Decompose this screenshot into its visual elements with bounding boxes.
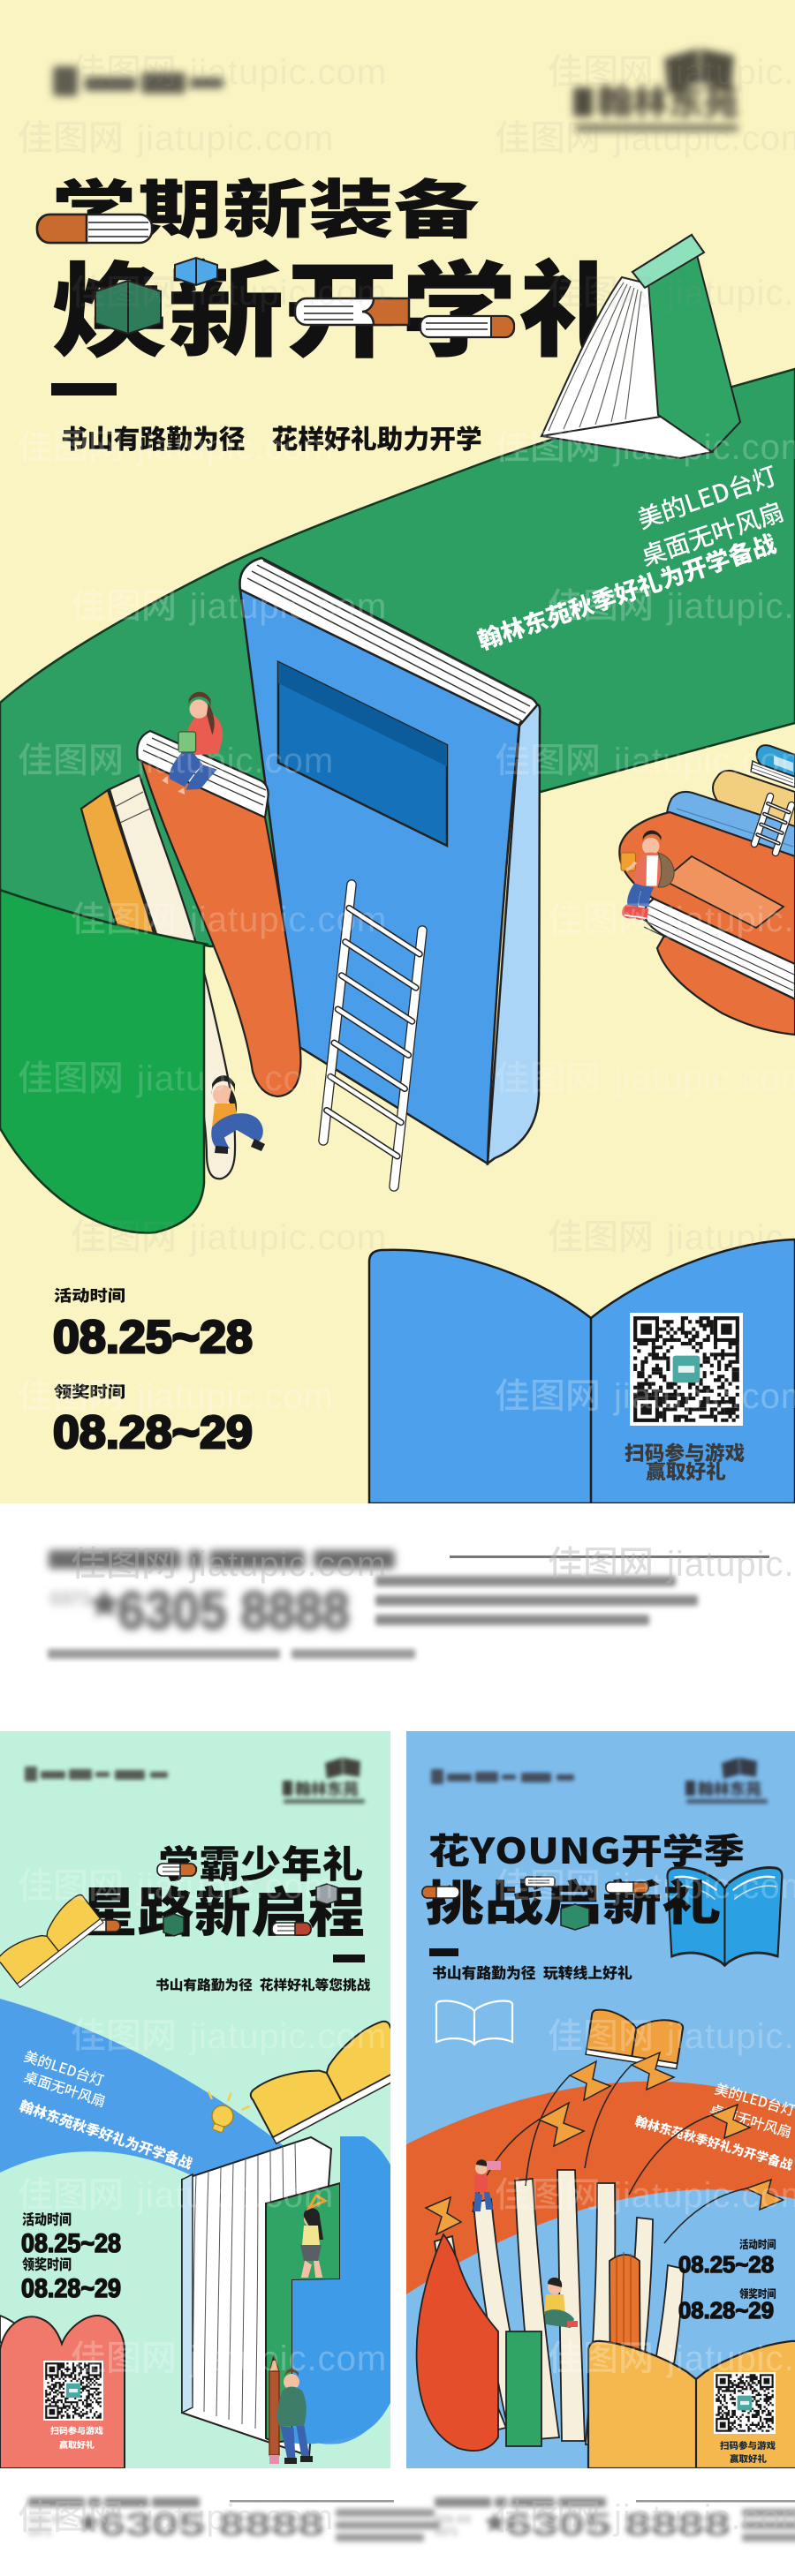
- svg-text:jiatupic.com: jiatupic.com: [613, 1377, 795, 1416]
- svg-text:jiatupic.com: jiatupic.com: [613, 1059, 795, 1098]
- svg-text:jiatupic.com: jiatupic.com: [136, 1377, 334, 1416]
- svg-text:jiatupic.com: jiatupic.com: [189, 900, 387, 939]
- svg-text:jiatupic.com: jiatupic.com: [136, 742, 334, 780]
- svg-text:08.25~28: 08.25~28: [21, 2229, 121, 2258]
- svg-text:08.25~28: 08.25~28: [53, 1312, 253, 1363]
- svg-text:jiatupic.com: jiatupic.com: [136, 1059, 334, 1098]
- svg-text:jiatupic.com: jiatupic.com: [136, 2176, 334, 2215]
- svg-text:0371: 0371: [435, 2526, 458, 2538]
- svg-text:jiatupic.com: jiatupic.com: [666, 900, 795, 939]
- svg-text:jiatupic.com: jiatupic.com: [136, 428, 334, 467]
- svg-text:jiatupic.com: jiatupic.com: [613, 428, 795, 467]
- svg-text:jiatupic.com: jiatupic.com: [189, 274, 387, 313]
- svg-text:0371: 0371: [50, 1589, 92, 1609]
- svg-text:jiatupic.com: jiatupic.com: [666, 1218, 795, 1257]
- svg-text:jiatupic.com: jiatupic.com: [136, 1867, 334, 1906]
- svg-text:jiatupic.com: jiatupic.com: [136, 2498, 334, 2537]
- svg-text:jiatupic.com: jiatupic.com: [189, 2339, 387, 2378]
- svg-text:jiatupic.com: jiatupic.com: [666, 53, 795, 92]
- svg-text:jiatupic.com: jiatupic.com: [613, 119, 795, 158]
- svg-text:jiatupic.com: jiatupic.com: [666, 587, 795, 626]
- svg-text:jiatupic.com: jiatupic.com: [666, 274, 795, 313]
- svg-text:jiatupic.com: jiatupic.com: [189, 53, 387, 92]
- svg-text:02X-XX: 02X-XX: [435, 2513, 471, 2526]
- svg-text:jiatupic.com: jiatupic.com: [189, 1218, 387, 1257]
- svg-text:jiatupic.com: jiatupic.com: [189, 587, 387, 626]
- svg-text:jiatupic.com: jiatupic.com: [613, 1867, 795, 1906]
- svg-text:08.25~28: 08.25~28: [678, 2251, 774, 2278]
- svg-text:jiatupic.com: jiatupic.com: [613, 2498, 795, 2537]
- svg-text:jiatupic.com: jiatupic.com: [666, 2017, 795, 2056]
- svg-text:jiatupic.com: jiatupic.com: [189, 2017, 387, 2056]
- svg-text:jiatupic.com: jiatupic.com: [613, 742, 795, 780]
- svg-text:6305 8888: 6305 8888: [117, 1581, 350, 1640]
- svg-text:jiatupic.com: jiatupic.com: [666, 2339, 795, 2378]
- svg-text:08.28~29: 08.28~29: [21, 2274, 121, 2303]
- svg-text:jiatupic.com: jiatupic.com: [666, 1545, 795, 1584]
- svg-text:08.28~29: 08.28~29: [678, 2297, 774, 2324]
- svg-text:jiatupic.com: jiatupic.com: [189, 1545, 387, 1584]
- svg-text:jiatupic.com: jiatupic.com: [136, 119, 334, 158]
- svg-text:jiatupic.com: jiatupic.com: [613, 2176, 795, 2215]
